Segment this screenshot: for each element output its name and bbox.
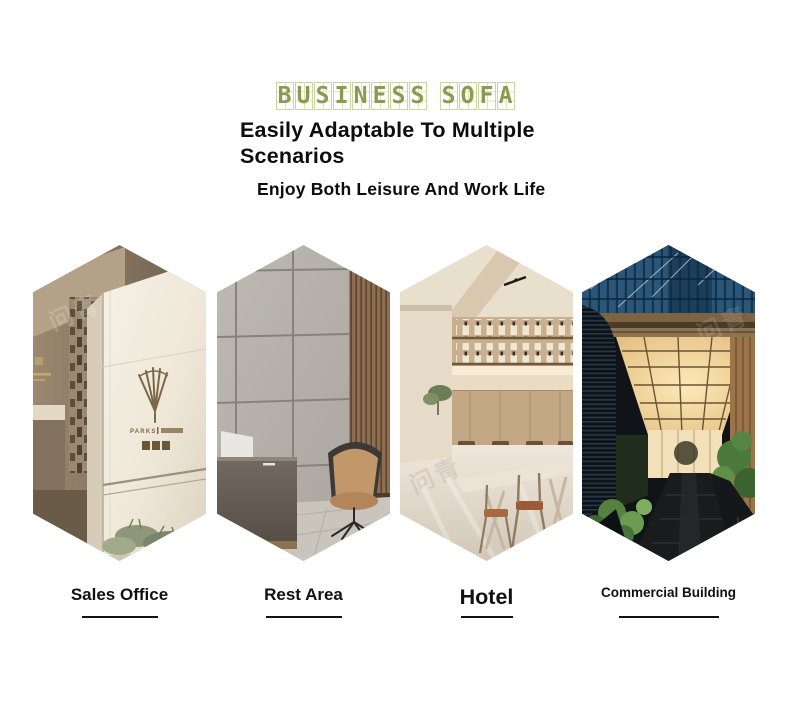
- label-underline: [82, 616, 158, 618]
- scenario-label-rest-area: Rest Area: [217, 585, 390, 605]
- section-heading-line1: Easily Adaptable To Multiple: [240, 117, 535, 143]
- section-heading: Easily Adaptable To Multiple Scenarios: [240, 117, 535, 169]
- brand-letter: U: [295, 82, 313, 110]
- business-sofa-section: BUSINESSSOFA Easily Adaptable To Multipl…: [0, 0, 790, 711]
- section-subheading: Enjoy Both Leisure And Work Life: [257, 179, 545, 200]
- commercial-building-image: 问青: [582, 245, 755, 561]
- brand-letter: B: [276, 82, 294, 110]
- sales-office-illustration: PARKS: [33, 245, 206, 561]
- scenario-commercial-building: 问青 Commercial Building: [582, 245, 755, 561]
- brand-letter: E: [371, 82, 389, 110]
- brand-letter: I: [333, 82, 351, 110]
- sales-office-image: PARKS 问青: [33, 245, 206, 561]
- section-heading-line2: Scenarios: [240, 143, 535, 169]
- brand-letter: S: [440, 82, 458, 110]
- label-underline: [619, 616, 719, 618]
- brand-letter: S: [390, 82, 408, 110]
- brand-letter: N: [352, 82, 370, 110]
- brand-title: BUSINESSSOFA: [0, 82, 790, 110]
- scenario-hotel: 问青 Hotel: [400, 245, 573, 561]
- scenario-sales-office: PARKS 问青 Sales Office: [33, 245, 206, 561]
- brand-letter: A: [497, 82, 515, 110]
- rest-area-illustration: [217, 245, 390, 561]
- brand-letter: F: [478, 82, 496, 110]
- scenario-rest-area: Rest Area: [217, 245, 390, 561]
- brand-letter: S: [314, 82, 332, 110]
- brand-letter: O: [459, 82, 477, 110]
- scenario-label-sales-office: Sales Office: [33, 585, 206, 605]
- rest-area-image: [217, 245, 390, 561]
- label-underline: [461, 616, 513, 618]
- scenario-label-commercial-building: Commercial Building: [582, 585, 755, 600]
- scenario-label-hotel: Hotel: [400, 585, 573, 610]
- hotel-illustration: [400, 245, 573, 561]
- svg-text:PARKS: PARKS: [130, 429, 157, 435]
- hotel-image: 问青: [400, 245, 573, 561]
- brand-word-gap: [428, 82, 439, 110]
- brand-letter: S: [409, 82, 427, 110]
- label-underline: [266, 616, 342, 618]
- commercial-building-illustration: [582, 245, 755, 561]
